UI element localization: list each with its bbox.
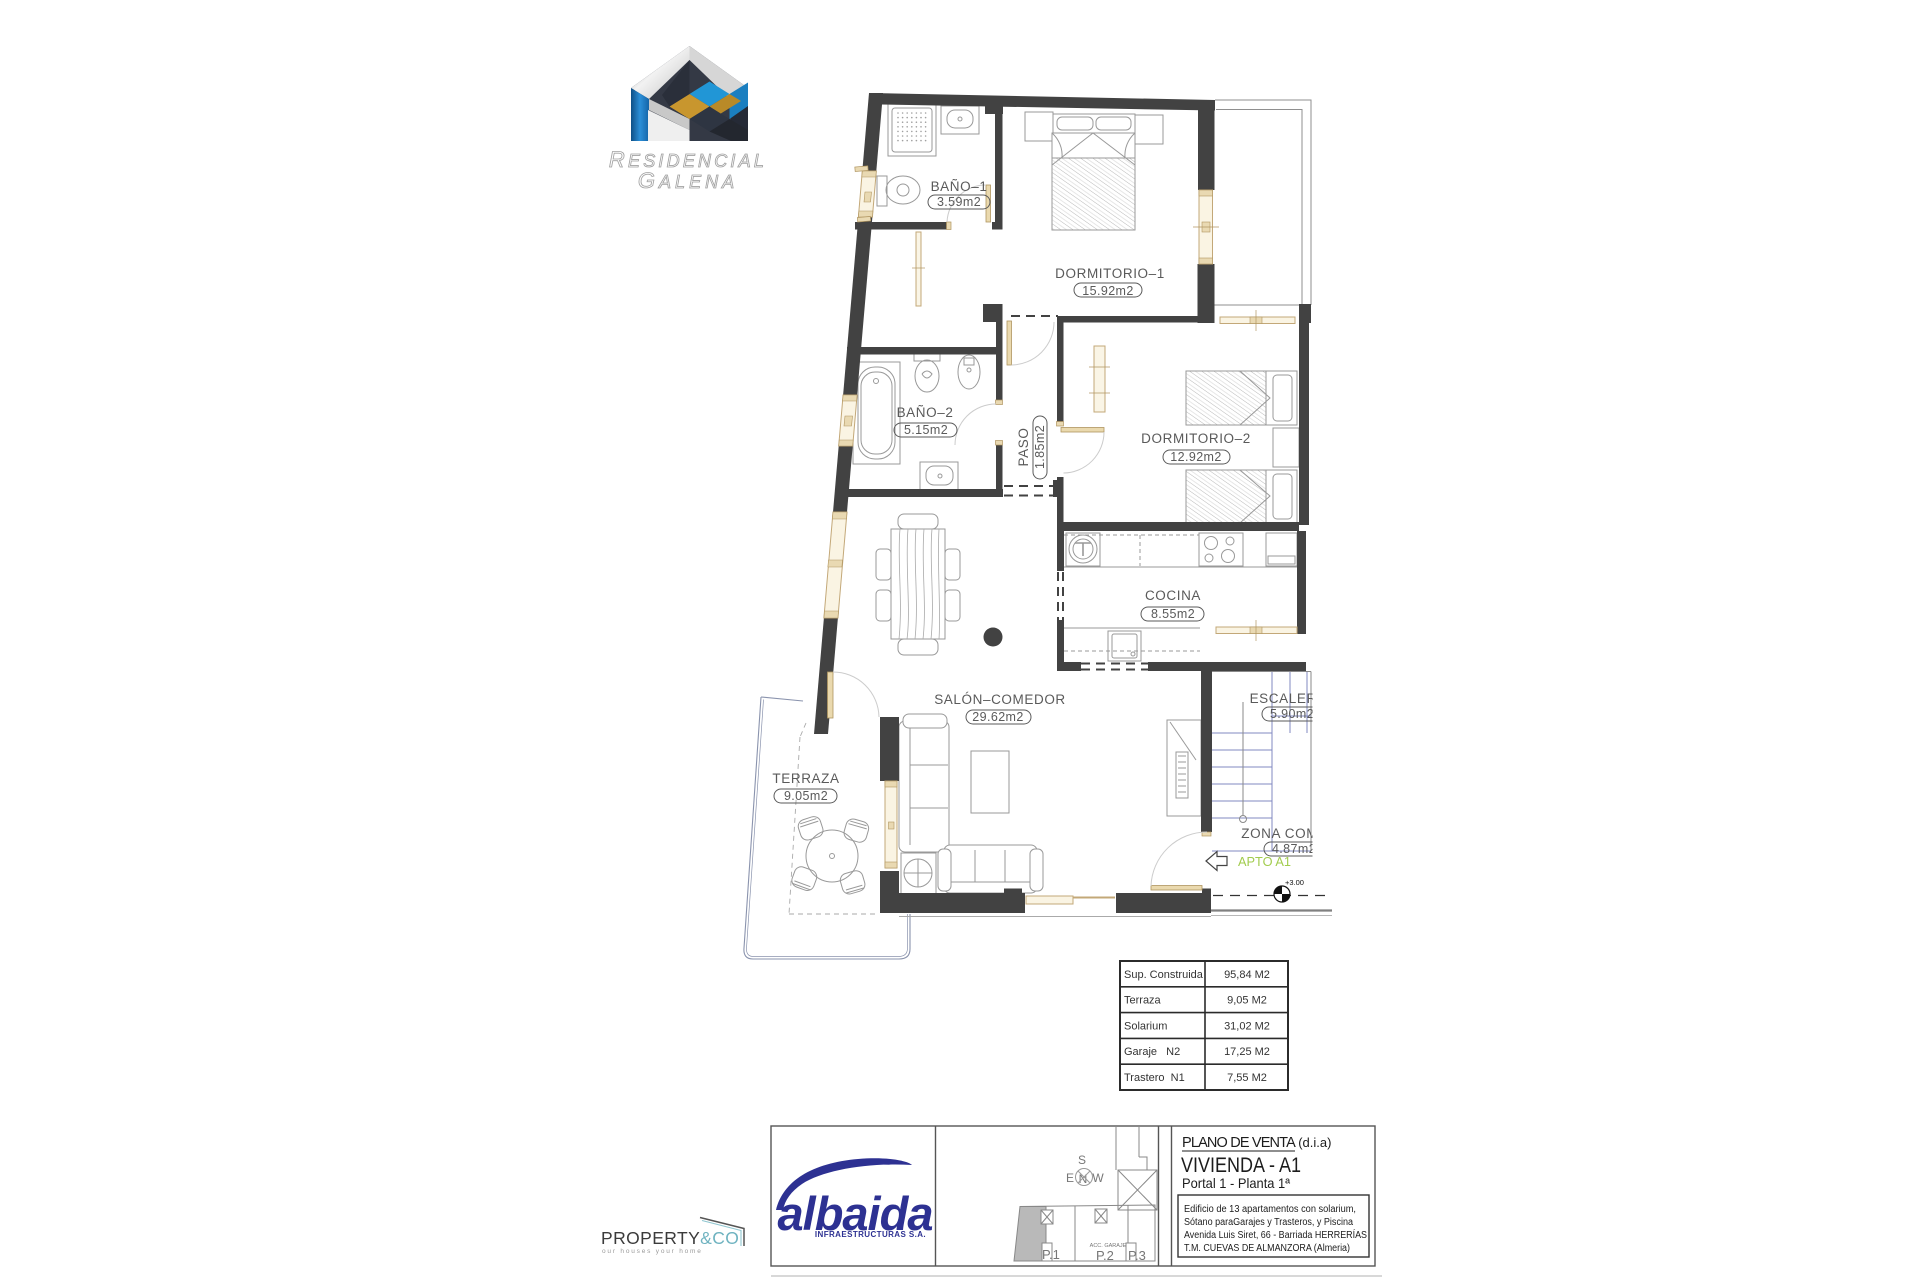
svg-text:GALENA: GALENA <box>638 168 738 193</box>
svg-text:17,25 M2: 17,25 M2 <box>1224 1046 1270 1058</box>
svg-text:SALÓN–COMEDOR: SALÓN–COMEDOR <box>934 692 1066 707</box>
svg-text:ACC. GARAJE: ACC. GARAJE <box>1090 1243 1127 1249</box>
svg-text:P.3: P.3 <box>1128 1248 1146 1263</box>
svg-text:W: W <box>1092 1171 1104 1185</box>
svg-text:+3.00: +3.00 <box>1285 878 1304 887</box>
svg-text:Garaje N2: Garaje N2 <box>1124 1046 1180 1058</box>
svg-text:15.92m2: 15.92m2 <box>1082 284 1133 298</box>
svg-text:our houses your home: our houses your home <box>602 1248 703 1255</box>
svg-text:Sup. Construida: Sup. Construida <box>1124 969 1204 981</box>
svg-text:9,05 M2: 9,05 M2 <box>1227 995 1267 1007</box>
svg-text:PROPERTY&CO: PROPERTY&CO <box>601 1228 739 1248</box>
svg-text:VIVIENDA - A1: VIVIENDA - A1 <box>1181 1154 1301 1177</box>
svg-text:4.87m2: 4.87m2 <box>1272 842 1316 856</box>
svg-text:7,55 M2: 7,55 M2 <box>1227 1072 1267 1084</box>
svg-text:3.59m2: 3.59m2 <box>937 195 981 209</box>
svg-text:APTO A1: APTO A1 <box>1238 855 1291 869</box>
svg-text:P.1: P.1 <box>1042 1247 1060 1262</box>
svg-text:5.15m2: 5.15m2 <box>904 423 948 437</box>
svg-text:DORMITORIO–1: DORMITORIO–1 <box>1055 266 1165 281</box>
svg-text:PASO: PASO <box>1016 428 1031 467</box>
svg-text:Trastero N1: Trastero N1 <box>1124 1072 1185 1084</box>
svg-text:29.62m2: 29.62m2 <box>972 710 1023 724</box>
svg-text:1.85m2: 1.85m2 <box>1033 425 1047 469</box>
svg-text:Portal 1 - Planta 1ª: Portal 1 - Planta 1ª <box>1182 1175 1291 1191</box>
svg-text:31,02 M2: 31,02 M2 <box>1224 1021 1270 1033</box>
svg-text:P.2: P.2 <box>1096 1248 1114 1263</box>
svg-text:Edificio de 13 apartamentos co: Edificio de 13 apartamentos con solarium… <box>1184 1204 1356 1215</box>
svg-text:INFRAESTRUCTURAS S.A.: INFRAESTRUCTURAS S.A. <box>815 1230 926 1239</box>
svg-text:TERRAZA: TERRAZA <box>772 771 839 786</box>
svg-text:S: S <box>1078 1153 1086 1167</box>
svg-text:BAÑO–2: BAÑO–2 <box>897 405 954 420</box>
svg-text:Terraza: Terraza <box>1124 995 1162 1007</box>
svg-text:RESIDENCIAL: RESIDENCIAL <box>609 147 767 172</box>
svg-text:8.55m2: 8.55m2 <box>1151 607 1195 621</box>
svg-text:Sótano paraGarajes y Trasteros: Sótano paraGarajes y Trasteros, y Piscin… <box>1184 1217 1353 1228</box>
svg-text:E: E <box>1066 1171 1074 1185</box>
svg-text:Solarium: Solarium <box>1124 1021 1167 1033</box>
svg-text:PLANO DE VENTA (d.i.a): PLANO DE VENTA (d.i.a) <box>1182 1135 1331 1151</box>
svg-text:COCINA: COCINA <box>1145 588 1201 603</box>
svg-text:9.05m2: 9.05m2 <box>784 789 828 803</box>
svg-text:Avenida Luis Siret, 66 - Barri: Avenida Luis Siret, 66 - Barriada HERRER… <box>1184 1228 1367 1241</box>
svg-text:5.90m2: 5.90m2 <box>1270 707 1314 721</box>
svg-text:BAÑO–1: BAÑO–1 <box>931 179 988 194</box>
svg-text:DORMITORIO–2: DORMITORIO–2 <box>1141 431 1251 446</box>
svg-text:12.92m2: 12.92m2 <box>1170 450 1221 464</box>
svg-text:T.M. CUEVAS DE ALMANZORA (Alme: T.M. CUEVAS DE ALMANZORA (Almeria) <box>1184 1243 1350 1254</box>
svg-text:95,84 M2: 95,84 M2 <box>1224 969 1270 981</box>
